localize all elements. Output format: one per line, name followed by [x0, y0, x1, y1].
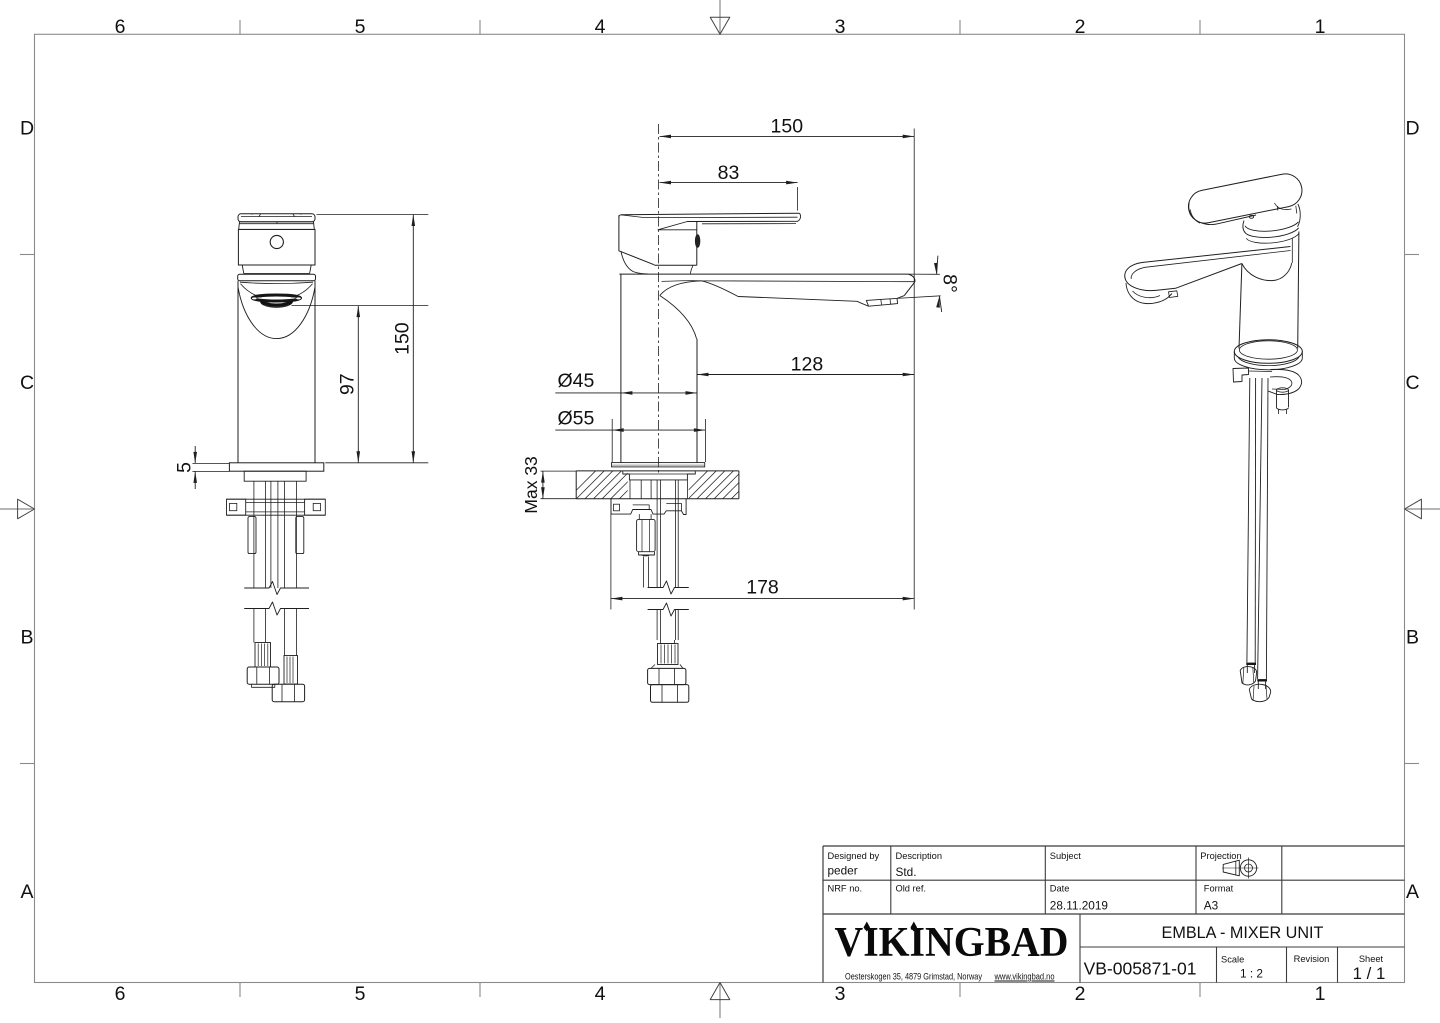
svg-text:1: 1: [1315, 16, 1326, 38]
svg-text:128: 128: [791, 354, 824, 376]
svg-text:D: D: [20, 117, 34, 139]
svg-text:peder: peder: [828, 864, 858, 878]
svg-text:1 / 1: 1 / 1: [1353, 964, 1386, 983]
svg-text:4: 4: [595, 16, 606, 38]
svg-text:97: 97: [337, 373, 359, 395]
svg-text:C: C: [1405, 372, 1419, 394]
svg-text:VB-005871-01: VB-005871-01: [1084, 959, 1197, 979]
svg-text:4: 4: [595, 983, 606, 1005]
svg-text:5: 5: [355, 983, 366, 1005]
svg-text:Ø55: Ø55: [558, 407, 595, 429]
svg-text:A: A: [20, 881, 33, 903]
svg-text:83: 83: [718, 162, 740, 184]
svg-text:NRF no.: NRF no.: [828, 883, 863, 893]
svg-text:150: 150: [771, 116, 804, 138]
svg-text:28.11.2019: 28.11.2019: [1050, 899, 1108, 913]
svg-text:Sheet: Sheet: [1359, 954, 1384, 964]
svg-text:Revision: Revision: [1294, 954, 1330, 964]
svg-text:A: A: [1406, 881, 1419, 903]
svg-text:3: 3: [835, 16, 846, 38]
svg-text:Max 33: Max 33: [521, 456, 541, 513]
svg-text:3: 3: [835, 983, 846, 1005]
svg-text:Oesterskogen 35, 4879 Grimstad: Oesterskogen 35, 4879 Grimstad, Norway: [845, 972, 982, 983]
svg-text:Std.: Std.: [896, 865, 917, 879]
svg-text:Projection: Projection: [1200, 851, 1241, 861]
svg-text:Scale: Scale: [1221, 954, 1244, 964]
svg-text:C: C: [20, 372, 34, 394]
svg-text:178: 178: [746, 577, 779, 599]
svg-text:150: 150: [392, 322, 414, 355]
svg-text:Old ref.: Old ref.: [896, 883, 926, 893]
svg-text:6: 6: [115, 983, 126, 1005]
svg-text:8°: 8°: [939, 274, 961, 293]
svg-text:EMBLA - MIXER UNIT: EMBLA - MIXER UNIT: [1162, 924, 1324, 942]
svg-text:A3: A3: [1204, 899, 1219, 913]
svg-text:2: 2: [1075, 983, 1086, 1005]
svg-text:5: 5: [173, 462, 195, 473]
svg-text:B: B: [20, 626, 33, 648]
svg-text:B: B: [1406, 626, 1419, 648]
svg-text:Subject: Subject: [1050, 851, 1081, 861]
svg-text:D: D: [1405, 117, 1419, 139]
svg-text:2: 2: [1075, 16, 1086, 38]
svg-text:1 : 2: 1 : 2: [1240, 967, 1263, 981]
svg-text:Format: Format: [1204, 883, 1234, 893]
svg-text:5: 5: [355, 16, 366, 38]
svg-text:www.vikingbad.no: www.vikingbad.no: [994, 972, 1055, 983]
svg-text:Designed by: Designed by: [828, 851, 880, 861]
svg-text:6: 6: [115, 16, 126, 38]
svg-text:1: 1: [1315, 983, 1326, 1005]
svg-text:Date: Date: [1050, 883, 1070, 893]
svg-text:Description: Description: [896, 851, 943, 861]
svg-text:Ø45: Ø45: [558, 370, 595, 392]
